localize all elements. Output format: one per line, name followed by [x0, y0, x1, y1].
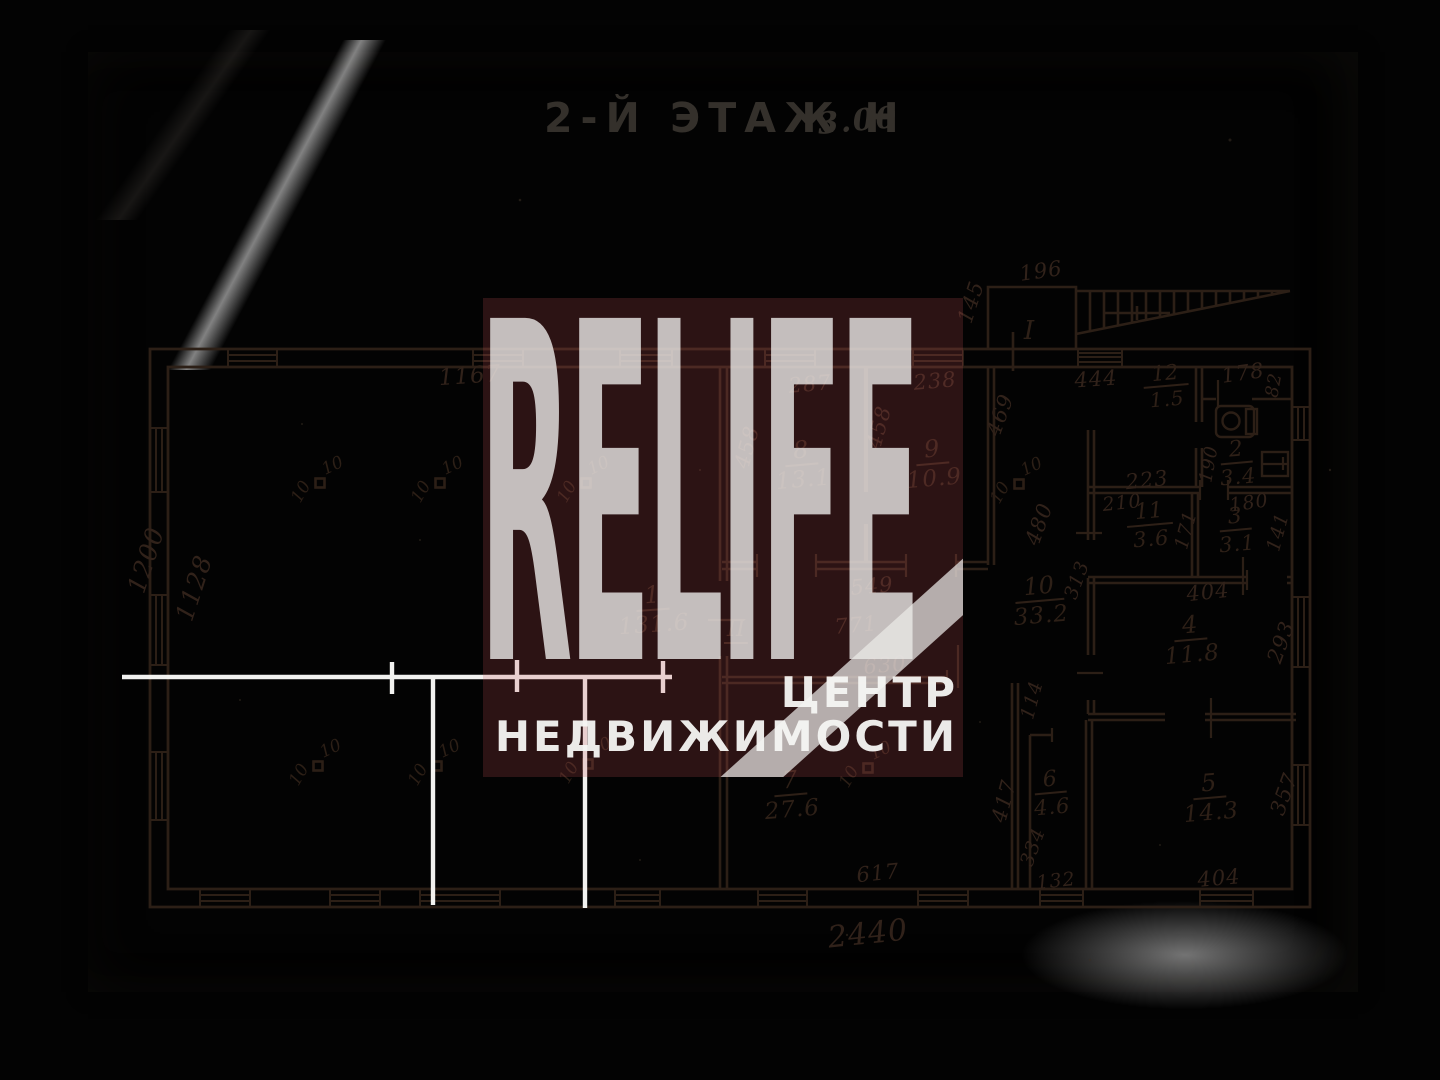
dim-room11-right: 171 [1170, 508, 1201, 552]
dim-corridor: 771 [833, 611, 878, 639]
dim-lobby-top: 178 [1220, 358, 1266, 388]
room-label-10: 10 33.2 [1010, 572, 1070, 631]
room-area: 3.1 [1218, 531, 1256, 556]
dim-room9-top: 238 [912, 367, 957, 395]
dim-room8-left: 458 [730, 423, 764, 471]
room-label-12: 12 1.5 [1142, 360, 1191, 412]
room-area: 11.8 [1164, 641, 1221, 670]
dim-stair-left: 145 [953, 278, 989, 326]
photo-of-floor-plan: 2-Й ЭТАЖ Н 3.00 10 10 10 [0, 0, 1440, 1080]
room-area: 1.5 [1144, 387, 1190, 412]
room-area: 131.6 [618, 611, 690, 640]
room-label-1: 1 131.6 [616, 580, 690, 639]
room-area: 33.2 [1013, 602, 1070, 631]
room-area: 13.1 [775, 466, 832, 495]
room-label-6: 6 4.6 [1031, 766, 1072, 819]
room-area: 4.6 [1033, 794, 1071, 819]
room-number: 6 [1033, 767, 1067, 796]
dim-room7-bottom: 617 [855, 859, 900, 887]
dim-room3-top: 180 [1228, 489, 1270, 516]
dim-room10-mid: 480 [1020, 500, 1057, 549]
dim-room10-low: 313 [1060, 558, 1094, 602]
room-area: 3.6 [1127, 526, 1175, 552]
dim-room2-left: 190 [1195, 444, 1222, 484]
handwritten-labels: 1 131.6 8 13.1 9 10.9 10 33.2 12 1.5 2 3… [0, 0, 1440, 1080]
dim-outer-bottom: 2440 [826, 912, 910, 955]
room-area: 14.3 [1183, 799, 1240, 828]
dim-room7-top: 630 [862, 651, 907, 679]
room-label-5: 5 14.3 [1180, 769, 1240, 828]
room-number: 2 [1219, 437, 1253, 466]
room-number: 7 [772, 766, 808, 797]
dim-room8-mid: 458 [862, 403, 896, 451]
room-label-7: 7 27.6 [761, 766, 821, 825]
dim-room9-right: 469 [981, 391, 1018, 440]
room-number: 4 [1172, 611, 1208, 642]
room-label-8: 8 13.1 [772, 436, 832, 495]
dim-hall-top: 1167 [438, 361, 502, 391]
dim-room5-right: 357 [1265, 770, 1302, 819]
room-area: 10.9 [906, 465, 963, 494]
dim-outer-left: 1200 [122, 523, 170, 596]
dim-lobby-right: 82 [1261, 371, 1286, 399]
dim-room10-top: 444 [1074, 366, 1119, 393]
room-label-9: 9 10.9 [903, 435, 963, 494]
room-number: 9 [914, 435, 950, 466]
dim-room8-top: 287 [787, 370, 832, 398]
room-number: 8 [783, 436, 819, 467]
room-number: 10 [1013, 572, 1064, 604]
dim-stair-top: 196 [1018, 256, 1064, 286]
room-area: 27.6 [764, 796, 821, 825]
dim-room6-left: 334 [1016, 825, 1050, 869]
hall-opening-label: II [724, 616, 748, 644]
dim-inner-left: 1128 [170, 551, 218, 624]
dim-room6-bottom: 132 [1035, 868, 1076, 894]
dim-room8-9-bottom: 549 [849, 572, 894, 600]
dim-room7-right: 417 [987, 777, 1021, 825]
room-area: 3.4 [1219, 464, 1257, 489]
dim-passage: 114 [1016, 678, 1047, 722]
dim-room4-top: 404 [1185, 578, 1230, 606]
dim-room3-right: 141 [1262, 510, 1293, 554]
dim-room5-bottom: 404 [1196, 864, 1241, 892]
room-label-4: 4 11.8 [1161, 611, 1221, 670]
dim-room11-top: 210 [1101, 490, 1142, 516]
dim-room4-right: 293 [1262, 618, 1299, 667]
room-label-2: 2 3.4 [1217, 436, 1258, 489]
stair-landing-label: I [1024, 316, 1034, 346]
room-number: 5 [1191, 769, 1227, 800]
room-number: 1 [634, 582, 669, 612]
